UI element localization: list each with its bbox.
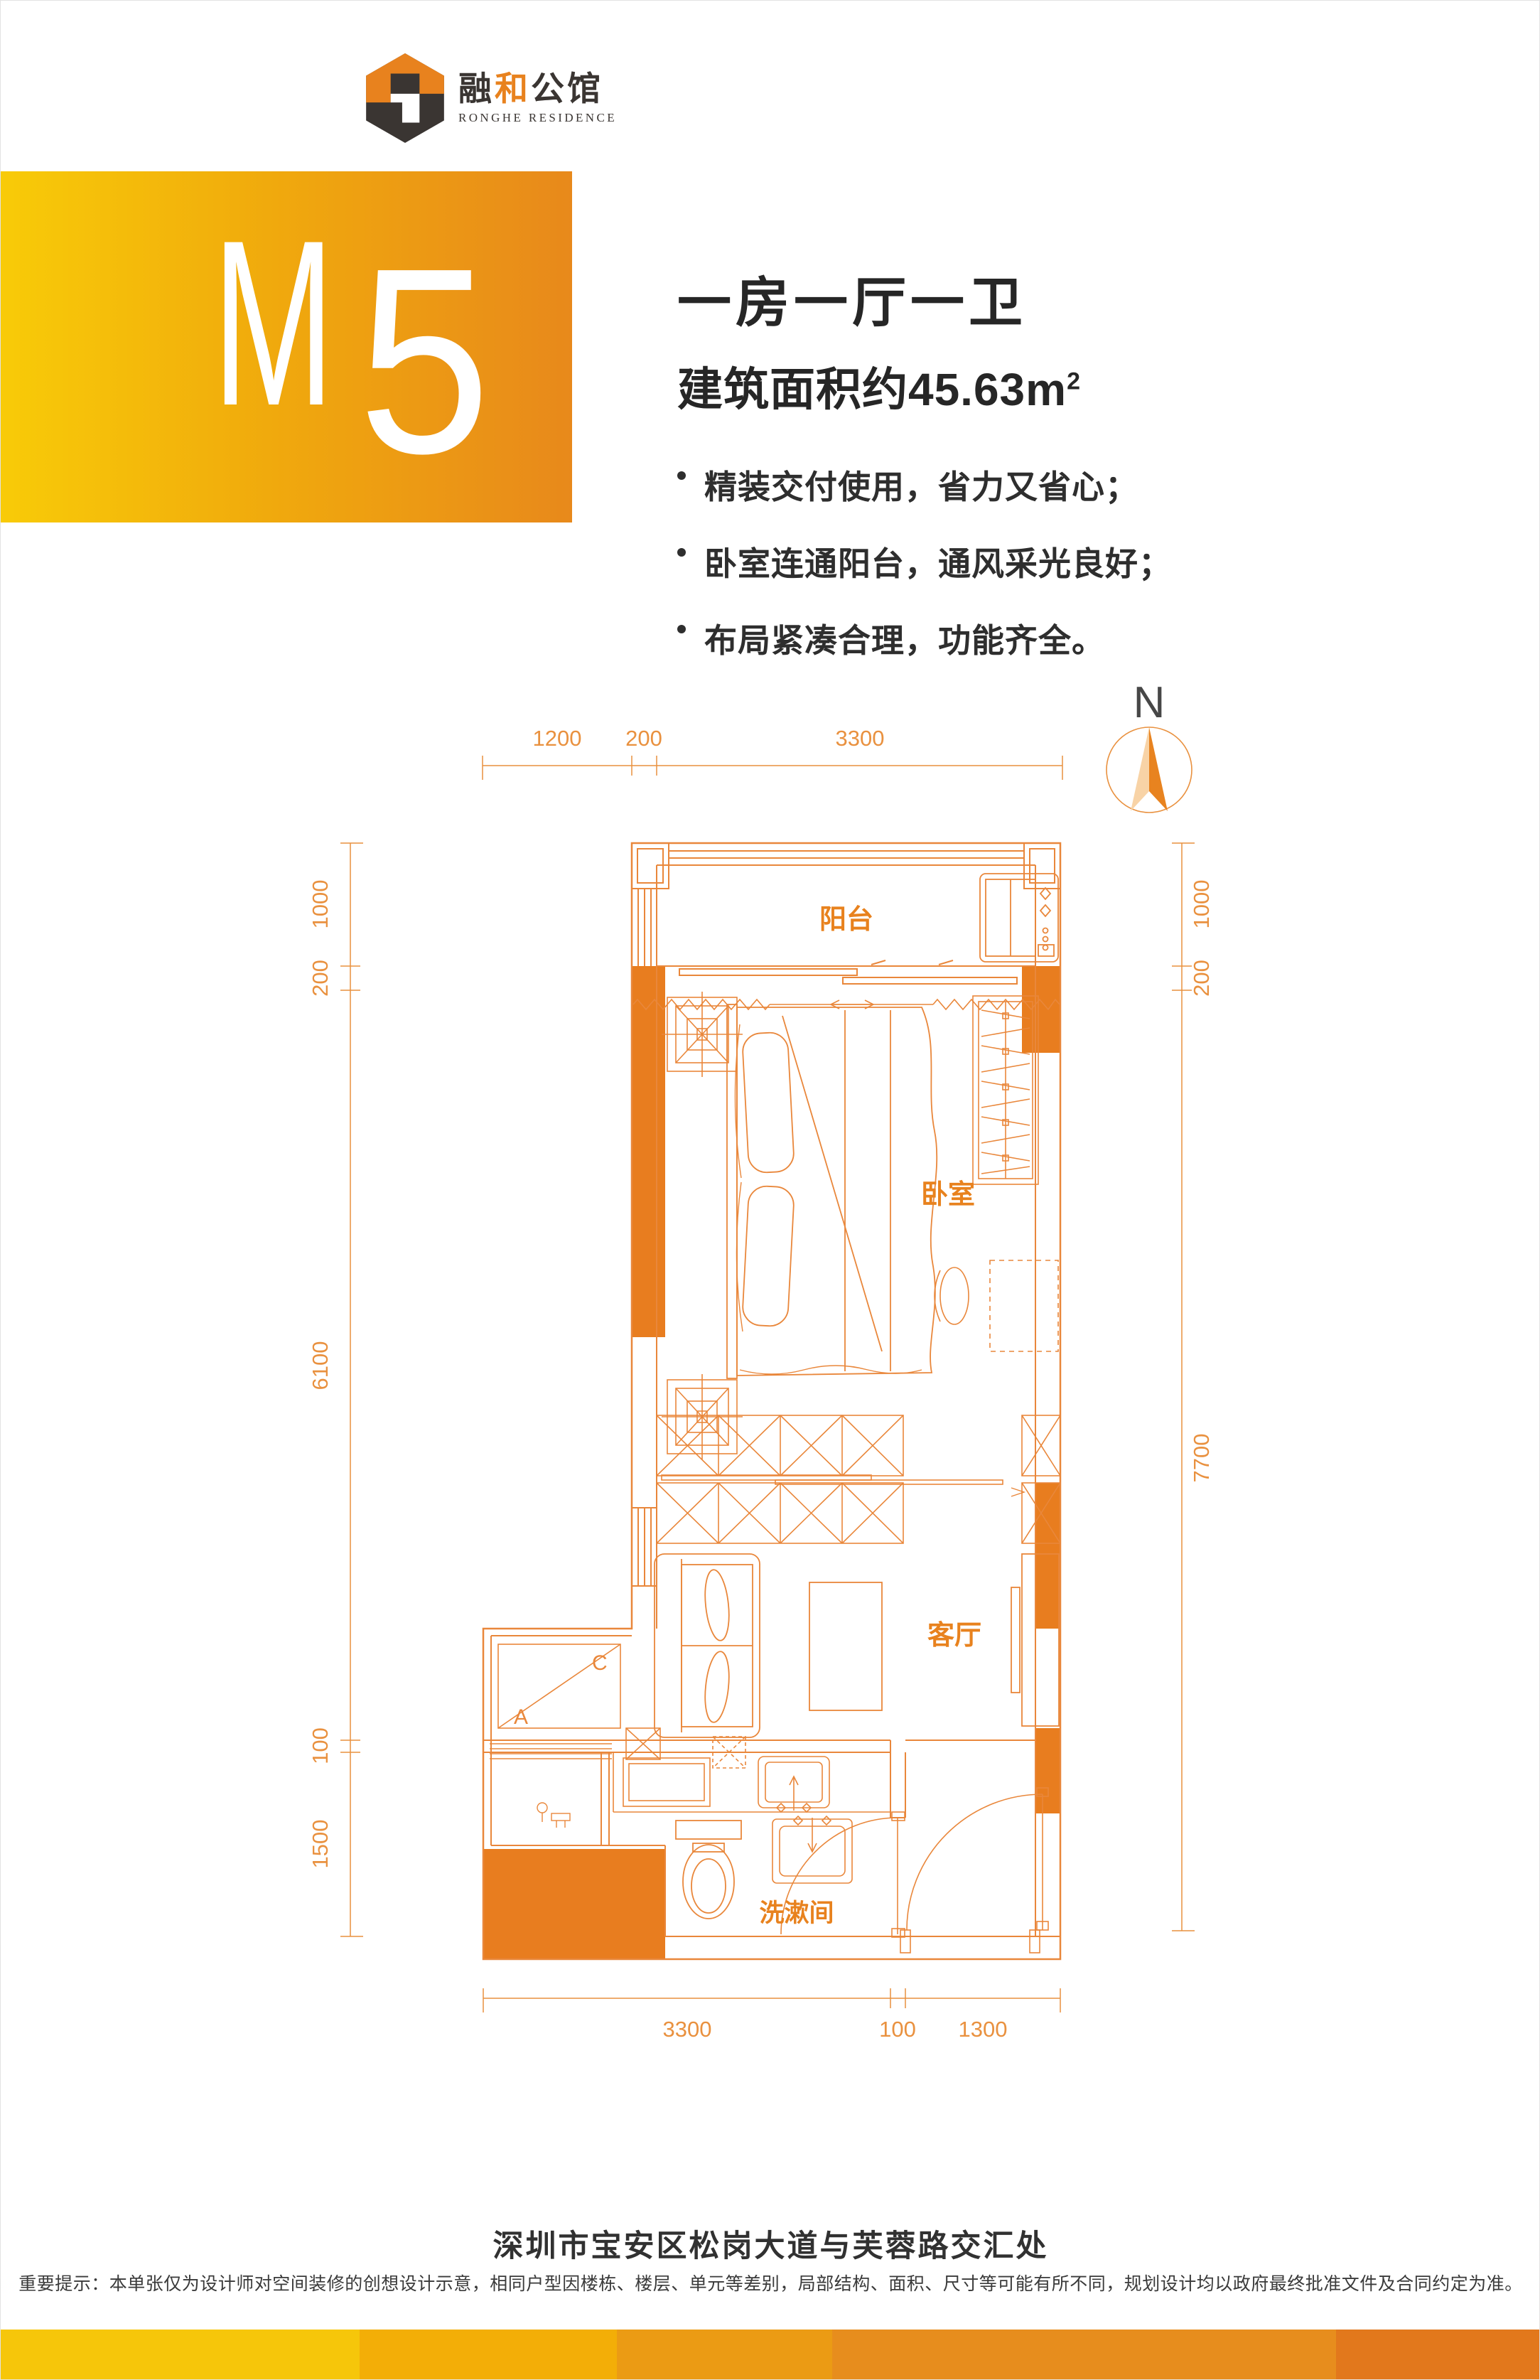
bottom-gradient-stripe (1, 2330, 1540, 2380)
dimension-lines (340, 756, 1195, 2012)
ac-label-c: C (592, 1651, 608, 1675)
flyer-page: 融和公馆 RONGHE RESIDENCE M 5 一房一厅一卫 建筑面积约45… (0, 0, 1540, 2380)
wall-fills (483, 966, 1060, 1959)
walls (483, 843, 1060, 1959)
dim-left-6100: 6100 (308, 1341, 333, 1390)
shower-drain-icon (537, 1803, 570, 1828)
room-label-living: 客厅 (927, 1620, 981, 1651)
sofa-icon (655, 1554, 760, 1737)
nightstand-bottom-icon (662, 1374, 743, 1459)
dim-right-7700: 7700 (1189, 1434, 1214, 1483)
dim-left-1000: 1000 (308, 880, 333, 929)
dim-bottom-100: 100 (879, 2017, 916, 2042)
dimension-labels: 1200 200 3300 1000 200 6100 100 1500 100… (308, 726, 1214, 2042)
floor-plan: 1200 200 3300 1000 200 6100 100 1500 100… (1, 1, 1540, 2380)
dim-right-1000: 1000 (1189, 880, 1214, 929)
kitchen-counter (613, 1752, 890, 1812)
dim-bottom-3300: 3300 (663, 2017, 712, 2042)
room-label-balcony: 阳台 (819, 905, 873, 935)
room-labels: 阳台 卧室 客厅 洗漱间 (759, 905, 981, 1927)
dim-right-200: 200 (1189, 960, 1214, 997)
ac-label-a: A (514, 1705, 528, 1729)
room-label-washroom: 洗漱间 (759, 1899, 834, 1927)
bed-icon (727, 1004, 937, 1378)
desk-and-stool-icon (935, 1260, 1058, 1351)
dim-left-100: 100 (308, 1727, 333, 1764)
dim-left-1500: 1500 (308, 1820, 333, 1869)
dim-top-1200: 1200 (533, 726, 582, 751)
project-address: 深圳市宝安区松岗大道与芙蓉路交汇处 (1, 2221, 1540, 2266)
coffee-table-icon (809, 1582, 882, 1710)
room-label-bedroom: 卧室 (921, 1179, 975, 1210)
north-label: N (1134, 678, 1165, 727)
footer-disclaimer: 重要提示：本单张仅为设计师对空间装修的创想设计示意，相同户型因楼栋、楼层、单元等… (1, 2270, 1540, 2295)
dim-bottom-1300: 1300 (959, 2017, 1008, 2042)
dim-top-200: 200 (625, 726, 662, 751)
closet-cabinets (657, 1415, 1060, 1543)
dim-top-3300: 3300 (836, 726, 885, 751)
north-compass-icon (1106, 727, 1192, 813)
toilet-icon (676, 1821, 741, 1919)
dim-left-200: 200 (308, 960, 333, 997)
washing-machine-icon (980, 874, 1058, 962)
entry-door (900, 1788, 1048, 1953)
washbasin-icon (772, 1816, 852, 1883)
